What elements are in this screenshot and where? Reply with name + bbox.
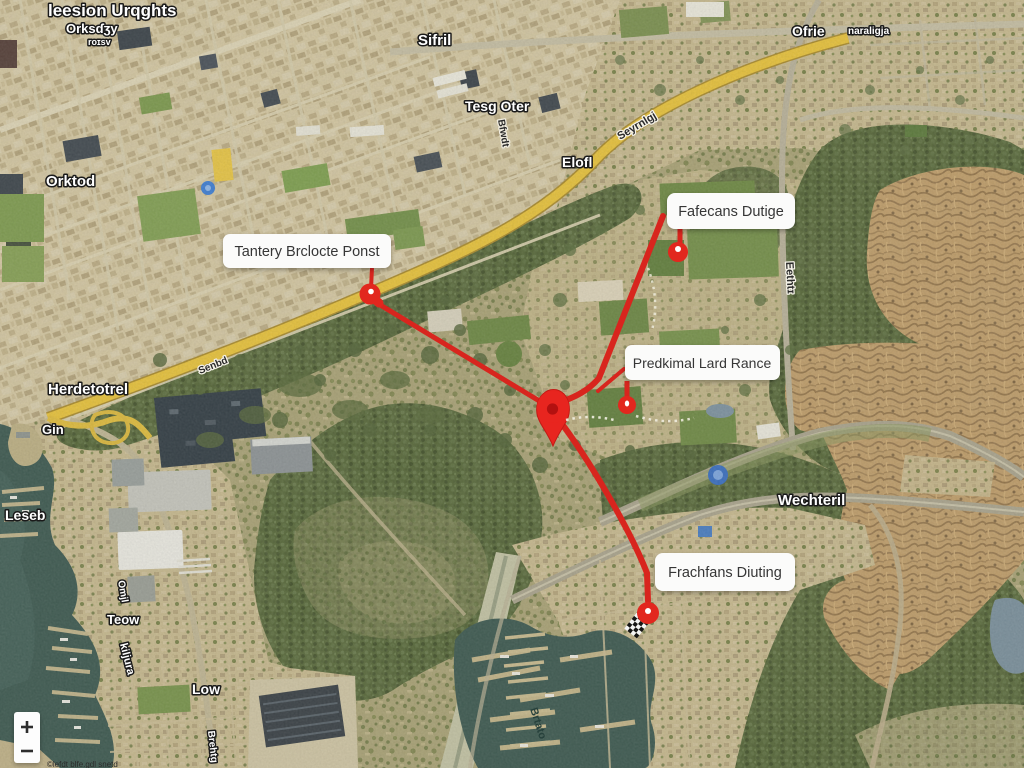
svg-text:Tantery Brclocte Ponst: Tantery Brclocte Ponst [234,244,379,260]
svg-text:roɪsv: roɪsv [88,37,111,47]
svg-text:Frachfans Diuting: Frachfans Diuting [668,565,782,581]
svg-text:Leseb: Leseb [5,507,45,523]
svg-text:Teow: Teow [107,612,140,627]
svg-text:Fafecans Dutige: Fafecans Dutige [678,204,784,220]
svg-text:©lefdt blfe.gdl snetd: ©lefdt blfe.gdl snetd [47,760,118,768]
svg-text:Gin: Gin [42,422,64,437]
svg-text:Wechteril: Wechteril [778,492,845,509]
svg-text:Herdetotrel: Herdetotrel [48,381,128,398]
svg-text:Elofl: Elofl [562,154,592,170]
svg-text:Orktod: Orktod [46,173,95,190]
svg-text:Ofrie: Ofrie [792,23,825,39]
svg-text:Tesg Oter: Tesg Oter [465,98,530,114]
svg-text:Eethtɪ: Eethtɪ [783,262,797,295]
svg-text:leesion Urqghts: leesion Urqghts [48,1,176,20]
svg-text:Predkimal Lard Rance: Predkimal Lard Rance [633,355,772,371]
svg-text:Orksɗʒy: Orksɗʒy [66,21,118,36]
svg-text:Low: Low [192,681,220,697]
svg-text:naraligja: naraligja [848,26,890,37]
svg-text:Sifril: Sifril [418,32,451,49]
